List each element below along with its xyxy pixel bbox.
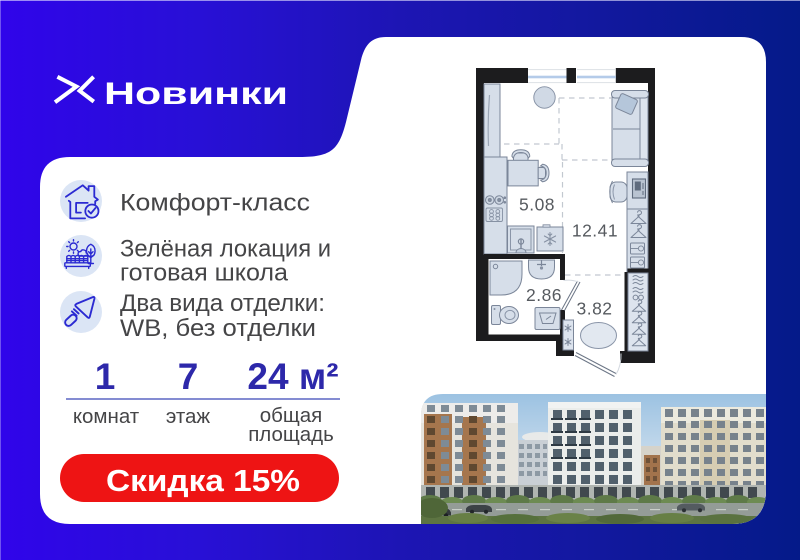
svg-text:7: 7 [178, 356, 199, 397]
svg-text:WB, без отделки: WB, без отделки [120, 315, 316, 342]
svg-text:Зелёная локация и: Зелёная локация и [120, 235, 331, 262]
svg-text:3.82: 3.82 [576, 299, 612, 319]
svg-text:5.08: 5.08 [519, 195, 555, 215]
svg-text:2.86: 2.86 [526, 285, 562, 305]
svg-text:Два вида отделки:: Два вида отделки: [120, 290, 325, 317]
svg-text:Комфорт-класс: Комфорт-класс [120, 190, 310, 217]
svg-text:комнат: комнат [73, 405, 140, 428]
svg-text:Скидка 15%: Скидка 15% [106, 464, 300, 498]
svg-text:12.41: 12.41 [572, 221, 618, 241]
svg-text:площадь: площадь [248, 423, 334, 446]
svg-text:готовая школа: готовая школа [120, 260, 289, 287]
svg-text:Новинки: Новинки [104, 75, 288, 111]
svg-text:этаж: этаж [166, 405, 211, 428]
svg-text:24 м²: 24 м² [247, 356, 338, 397]
svg-text:1: 1 [95, 356, 116, 397]
